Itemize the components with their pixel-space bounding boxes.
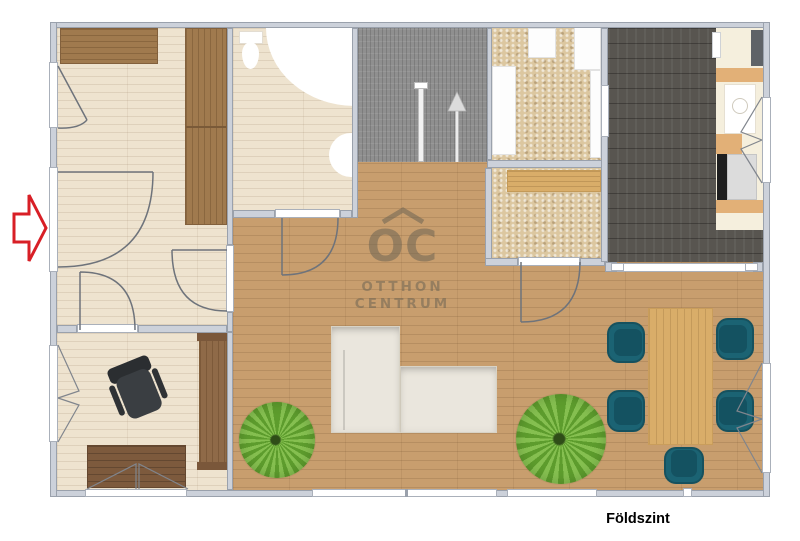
dining-window-casement — [737, 363, 762, 473]
entrance-door-swing — [58, 172, 153, 267]
office-left-window-casement — [58, 345, 79, 442]
watermark-logo: OC OTTHON CENTRUM — [345, 207, 460, 332]
stone-room-door-swing — [521, 262, 580, 322]
bathroom-door-swing — [282, 218, 338, 275]
bedroom-window-swing — [58, 66, 87, 128]
stairs-up-arrow-icon — [448, 92, 466, 162]
kitchen-window-casement — [741, 97, 762, 183]
watermark-monogram: OC — [345, 224, 460, 270]
floor-caption: Földszint — [597, 511, 679, 527]
hall-living-door-swing — [172, 250, 227, 311]
office-bottom-window-casement — [87, 464, 188, 489]
entrance-arrow-icon — [11, 191, 49, 265]
watermark-line2: CENTRUM — [345, 296, 460, 313]
office-door-swing — [80, 272, 135, 330]
watermark-line1: OTTHON — [345, 279, 460, 296]
floor-plan: OC OTTHON CENTRUM Földszint — [0, 0, 800, 541]
